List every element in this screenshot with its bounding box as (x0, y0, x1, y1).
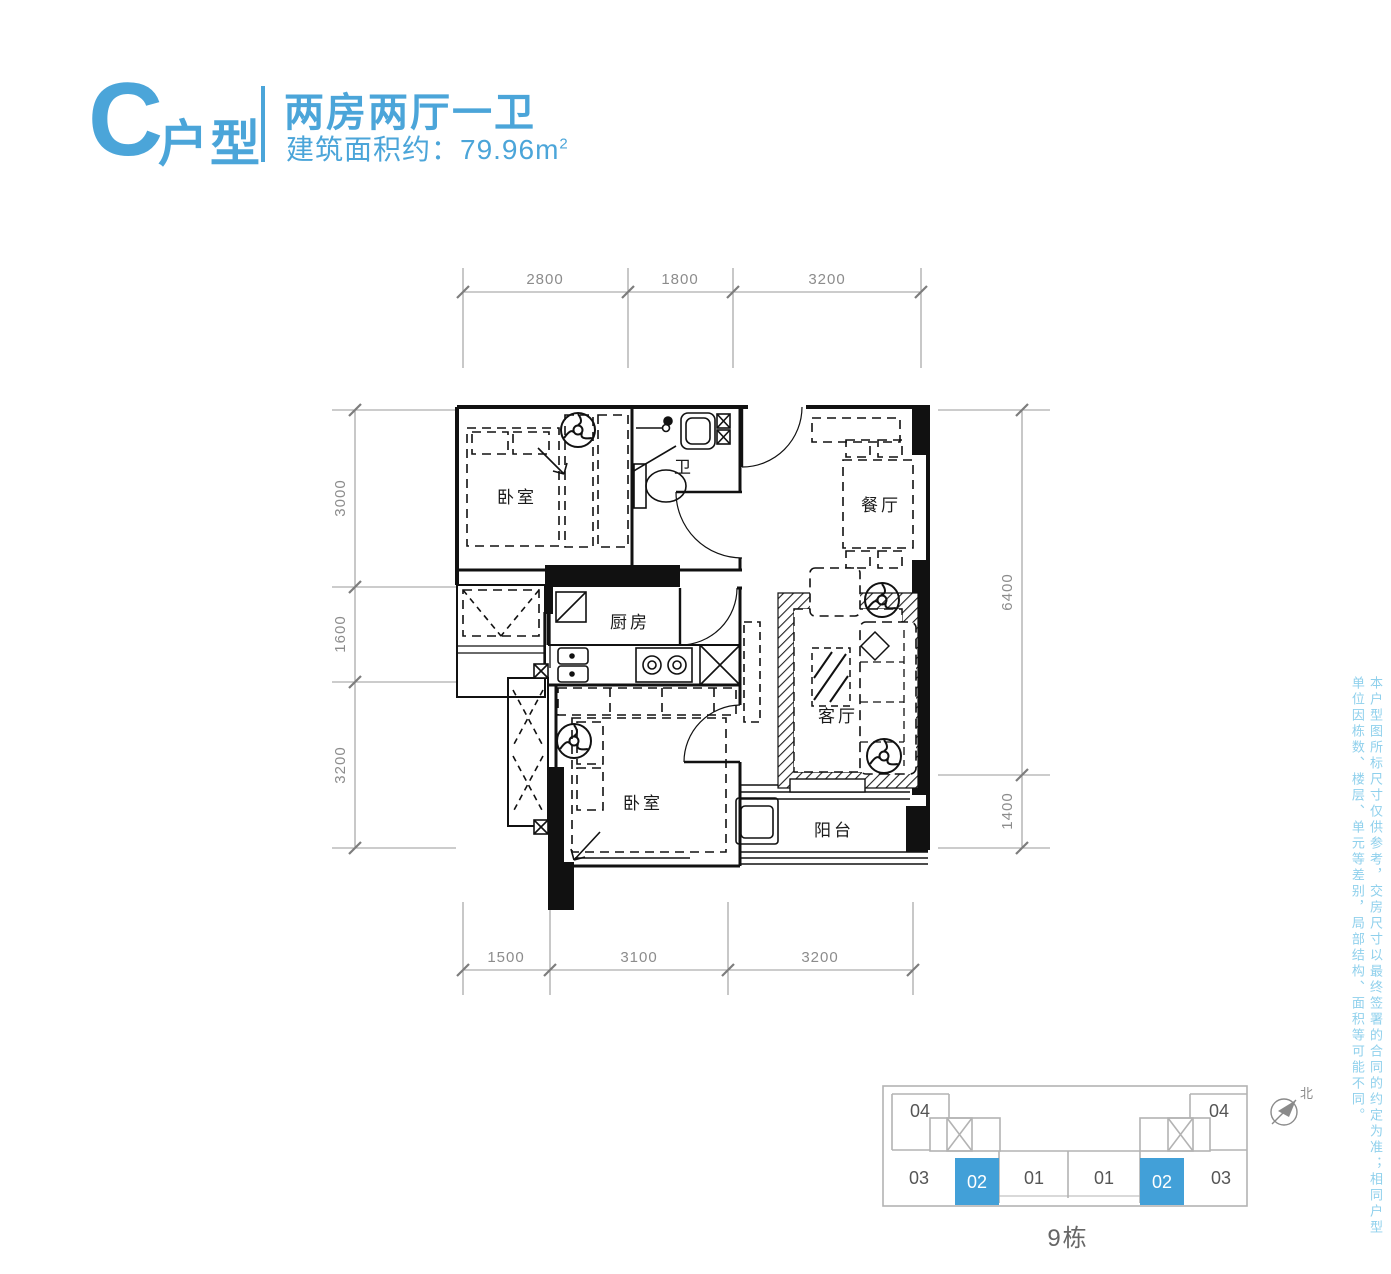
floorplan-page: { "header": { "type_letter": "C", "type_… (0, 0, 1391, 1274)
compass-north-label: 北 (1300, 1086, 1313, 1101)
keyplan-label: 03 (909, 1168, 929, 1188)
keyplan-label: 01 (1094, 1168, 1114, 1188)
room-label-bedroom1: 卧室 (497, 488, 537, 507)
dim-left-1: 3000 (332, 479, 349, 516)
dim-left-2: 1600 (332, 615, 349, 652)
room-label-bedroom2: 卧室 (623, 794, 663, 813)
keyplan-building-label: 9栋 (1047, 1225, 1088, 1252)
keyplan-label-highlighted: 02 (967, 1172, 987, 1192)
dimension-lines (332, 268, 1050, 995)
dim-bottom-1: 1500 (487, 949, 524, 966)
keyplan-label: 03 (1211, 1168, 1231, 1188)
room-label-dining: 餐厅 (861, 496, 901, 515)
fan-icon (561, 413, 595, 447)
platform-details (513, 690, 543, 812)
column-marker-icon (534, 820, 548, 834)
keyplan-label: 01 (1024, 1168, 1044, 1188)
dim-top-1: 2800 (526, 271, 563, 288)
disclaimer-text: 本户型图所标尺寸仅供参考，交房尺寸以最终签署的合同的约定为准；相同户型单位因栋数… (1358, 676, 1384, 1236)
dim-top-2: 1800 (661, 271, 698, 288)
keyplan-label: 04 (910, 1101, 930, 1121)
living-furniture (778, 568, 918, 788)
keyplan: 04 03 02 01 01 02 03 04 9栋 (883, 1086, 1247, 1252)
keyplan-label-highlighted: 02 (1152, 1172, 1172, 1192)
keyplan-label: 04 (1209, 1101, 1229, 1121)
floorplan-svg: 2800 1800 3200 1500 3100 3200 3000 1600 … (0, 0, 1391, 1274)
dim-right-1: 6400 (999, 573, 1016, 610)
room-label-bath: 卫 (674, 458, 694, 477)
room-label-balcony: 阳台 (814, 821, 854, 840)
dining-furniture (812, 418, 913, 568)
room-label-living: 客厅 (818, 707, 858, 726)
room-label-kitchen: 厨房 (610, 613, 650, 632)
fan-icon (557, 724, 591, 758)
compass: 北 (1271, 1086, 1313, 1125)
column-marker-icon (534, 664, 548, 678)
dim-left-3: 3200 (332, 746, 349, 783)
dim-bottom-3: 3200 (801, 949, 838, 966)
kitchen-fixtures (548, 592, 760, 722)
dim-bottom-2: 3100 (620, 949, 657, 966)
dim-top-3: 3200 (808, 271, 845, 288)
dim-right-2: 1400 (999, 792, 1016, 829)
